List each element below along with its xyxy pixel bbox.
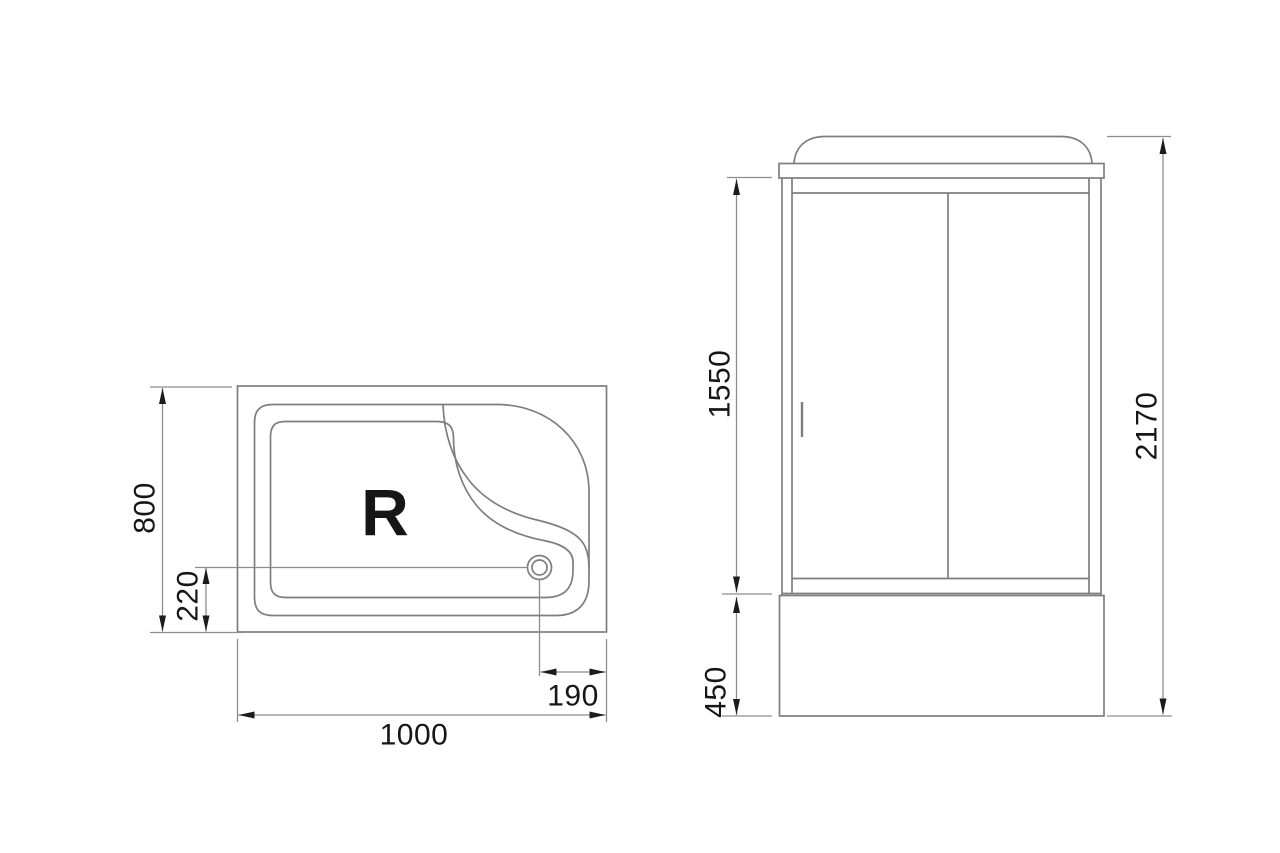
arrow-up-800 [159, 388, 166, 404]
dim-label-1000: 1000 [380, 719, 449, 752]
dim-label-450: 450 [700, 666, 733, 718]
technical-drawing-page: R 800 220 1000 190 [0, 0, 1280, 853]
arrow-down-450 [733, 699, 740, 715]
dim-label-800: 800 [129, 482, 162, 534]
tray-outer-edge [238, 386, 607, 632]
arrow-right-1000 [590, 712, 606, 719]
orientation-marker-r: R [361, 475, 409, 549]
drawing-svg: R 800 220 1000 190 [0, 0, 1280, 853]
arrow-right-190 [590, 669, 606, 676]
dim-label-190: 190 [547, 680, 599, 713]
arrow-up-1550 [733, 179, 740, 195]
tray-rim-lip [255, 405, 590, 616]
arrow-down-1550 [733, 577, 740, 593]
dim-label-2170: 2170 [1131, 392, 1164, 461]
arrow-left-1000 [239, 712, 255, 719]
arrow-up-2170 [1160, 138, 1167, 154]
arrow-down-2170 [1160, 699, 1167, 715]
drain-circle-outer [528, 556, 552, 580]
roof-dome [794, 137, 1092, 164]
front-view: 1550 450 2170 [700, 137, 1173, 718]
base-apron-panel [780, 596, 1105, 717]
arrow-left-190 [541, 669, 557, 676]
dim-label-1550: 1550 [704, 350, 737, 419]
top-view: R 800 220 1000 190 [129, 386, 607, 752]
top-frame-bar [779, 164, 1104, 179]
arrow-down-800 [159, 616, 166, 632]
dim-label-220: 220 [172, 570, 205, 622]
arrow-up-450 [733, 597, 740, 613]
drain-circle-inner [532, 560, 547, 575]
